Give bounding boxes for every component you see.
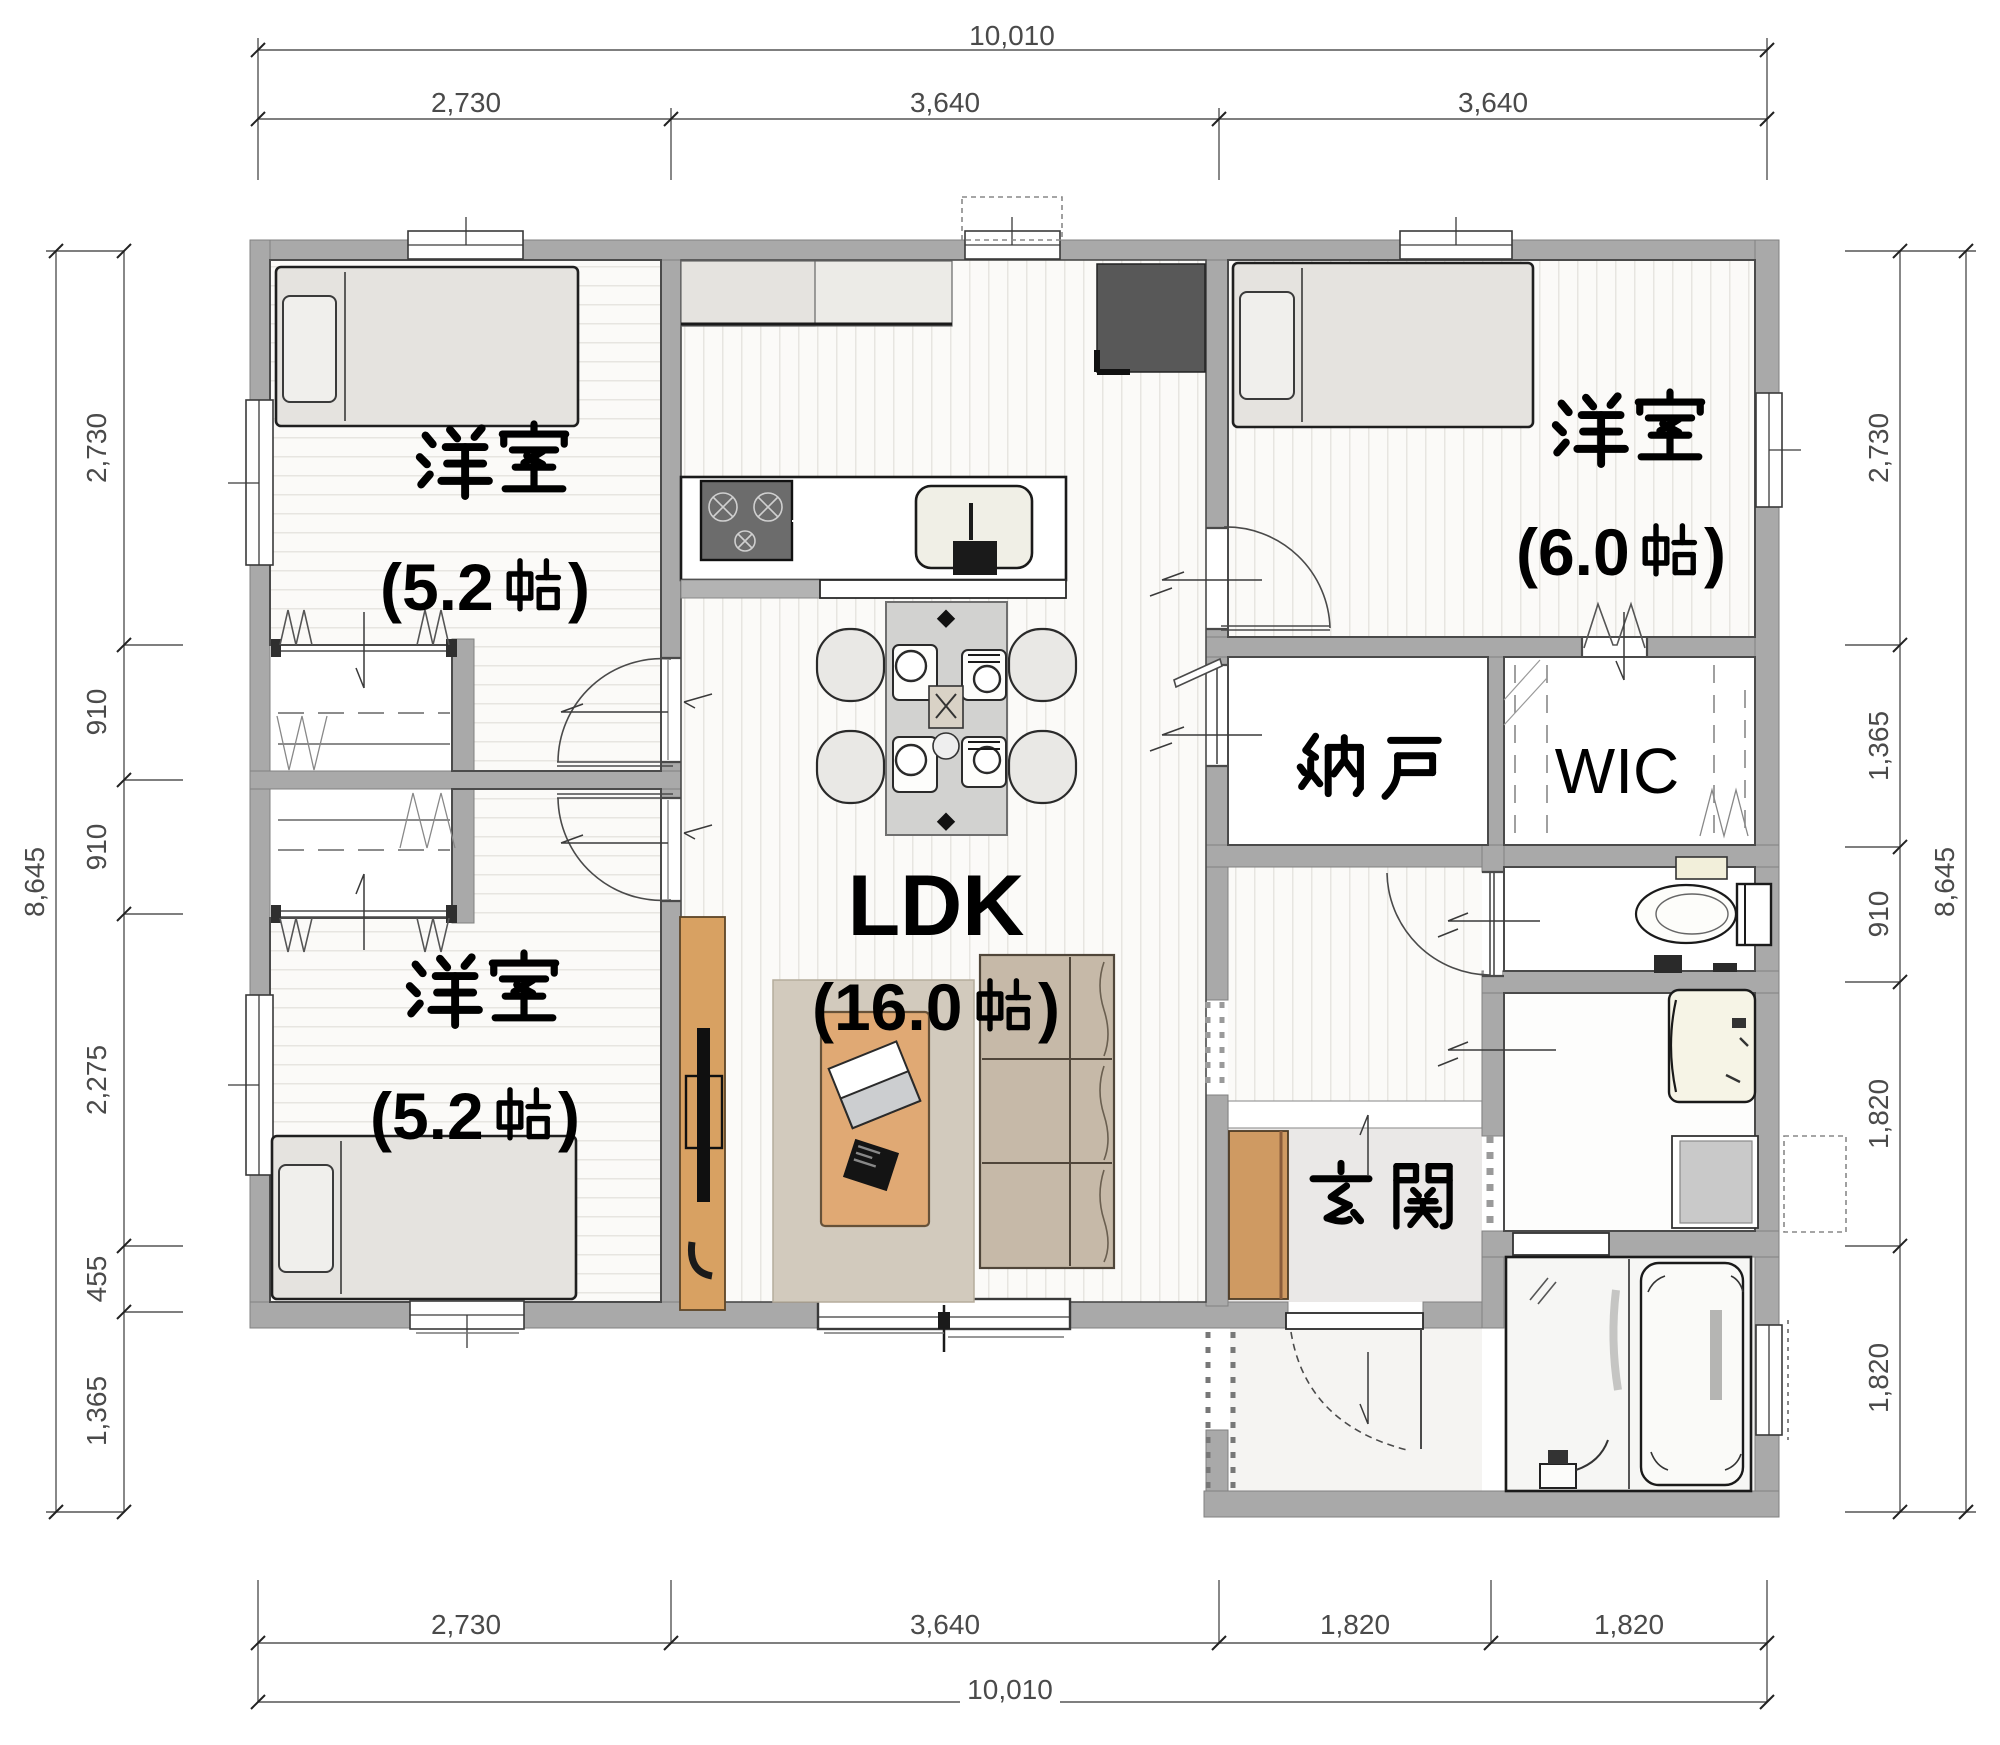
svg-text:2,730: 2,730 [81, 413, 112, 483]
svg-text:910: 910 [1863, 891, 1894, 938]
svg-text:): ) [1038, 970, 1060, 1044]
svg-text:): ) [558, 1079, 580, 1153]
svg-text:): ) [1704, 515, 1726, 589]
svg-text:1,820: 1,820 [1594, 1609, 1664, 1640]
svg-text:(5.2: (5.2 [370, 1079, 484, 1153]
svg-text:(5.2: (5.2 [380, 550, 494, 624]
svg-text:455: 455 [81, 1256, 112, 1303]
svg-text:1,820: 1,820 [1863, 1343, 1894, 1413]
svg-text:8,645: 8,645 [1929, 847, 1960, 917]
svg-text:1,820: 1,820 [1320, 1609, 1390, 1640]
svg-text:): ) [568, 550, 590, 624]
svg-text:2,730: 2,730 [1863, 413, 1894, 483]
svg-text:910: 910 [81, 824, 112, 871]
svg-text:1,365: 1,365 [81, 1376, 112, 1446]
svg-text:3,640: 3,640 [910, 1609, 980, 1640]
svg-text:(16.0: (16.0 [812, 970, 962, 1044]
svg-text:2,275: 2,275 [81, 1045, 112, 1115]
svg-text:2,730: 2,730 [431, 87, 501, 118]
svg-text:3,640: 3,640 [1458, 87, 1528, 118]
svg-text:10,010: 10,010 [967, 1674, 1053, 1705]
svg-text:8,645: 8,645 [19, 847, 50, 917]
svg-text:3,640: 3,640 [910, 87, 980, 118]
svg-text:1,820: 1,820 [1863, 1079, 1894, 1149]
svg-text:LDK: LDK [848, 858, 1025, 954]
svg-text:10,010: 10,010 [969, 20, 1055, 51]
svg-text:1,365: 1,365 [1863, 711, 1894, 781]
svg-text:2,730: 2,730 [431, 1609, 501, 1640]
svg-text:WIC: WIC [1555, 735, 1679, 807]
svg-text:(6.0: (6.0 [1516, 515, 1630, 589]
svg-text:910: 910 [81, 689, 112, 736]
